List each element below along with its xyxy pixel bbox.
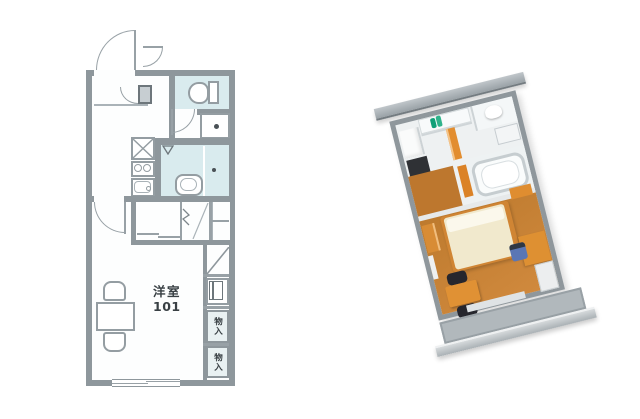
- burner-left-icon: [134, 164, 142, 172]
- genkan-step-line: [94, 104, 148, 106]
- storage-label-1: 物入: [212, 317, 224, 336]
- storage-box-2: 物入: [206, 346, 229, 378]
- stove-x-mark-icon: [133, 139, 153, 158]
- burner-right-icon: [143, 164, 151, 172]
- closet-diagonal-line-icon: [190, 203, 209, 239]
- floor-plan-2d: 物入 物入 洋室 101: [0, 0, 300, 419]
- upper-right-shelf-divider: [212, 220, 229, 222]
- toilet-tank-icon: [208, 81, 219, 104]
- entrance-cabinet-icon: [138, 85, 152, 104]
- entrance-door-leaf-large: [134, 30, 136, 70]
- column-divider-2: [203, 306, 229, 309]
- bottom-window-sash-1: [112, 383, 148, 384]
- sink-drain-icon: [146, 186, 151, 191]
- dining-table-icon: [96, 302, 135, 331]
- chair-icon-bottom: [103, 332, 126, 352]
- closet-slide-line-2: [158, 236, 180, 238]
- toilet-door-leaf: [171, 109, 173, 135]
- toilet-bowl-icon: [188, 82, 209, 104]
- wall-closet-bottom: [131, 240, 235, 245]
- storage-label-2: 物入: [212, 353, 224, 372]
- wall-bath-top: [155, 138, 235, 145]
- room-label-line2: 101: [153, 299, 181, 314]
- shower-triangle-icon: [162, 145, 174, 155]
- chair-icon-top: [103, 281, 126, 301]
- column-divider-1: [203, 274, 229, 277]
- room-label: 洋室 101: [153, 284, 181, 314]
- entrance-door-arc-small-icon: [143, 47, 163, 67]
- washing-machine-tap-dot: [214, 124, 219, 129]
- floor-plan-screenshot: 物入 物入 洋室 101: [0, 0, 640, 419]
- floor-plan-3d: [352, 55, 602, 385]
- bathtub-inner-icon: [180, 178, 197, 191]
- entrance-door-arc-large-icon: [96, 30, 135, 70]
- bathroom-divider: [203, 146, 205, 196]
- window-pane-divider: [212, 281, 214, 300]
- wall-left: [86, 70, 92, 386]
- bathroom-door-knob-dot: [212, 168, 216, 172]
- plan3d-unit: [389, 90, 565, 320]
- storage-box-1: 物入: [206, 310, 229, 343]
- bottom-window-sash-2: [146, 381, 180, 382]
- diagonal-line-icon: [207, 247, 229, 274]
- wall-middle-left: [86, 196, 94, 202]
- room-label-line1: 洋室: [153, 284, 181, 299]
- entrance-door-leaf-small: [143, 46, 163, 48]
- closet-slide-line-1: [137, 233, 159, 235]
- room-door-leaf: [124, 202, 126, 234]
